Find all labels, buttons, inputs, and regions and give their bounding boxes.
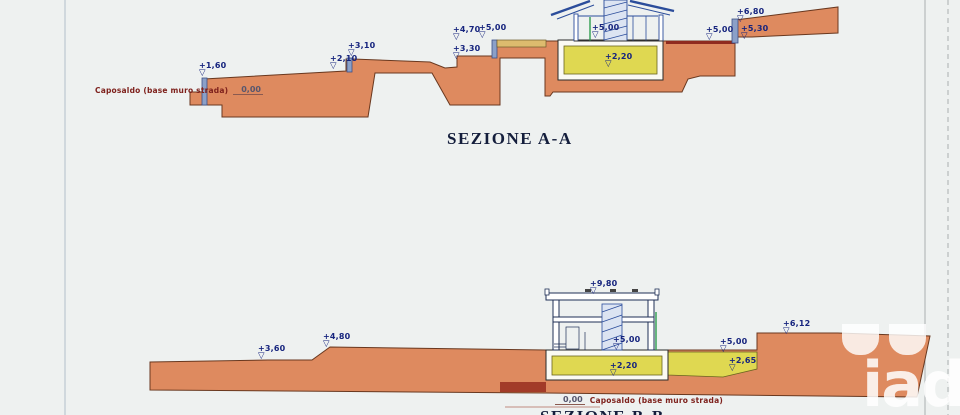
roof-slope-left (551, 1, 590, 15)
retaining-wall (732, 19, 738, 43)
caposaldo-a-label: Caposaldo (base muro strada) (95, 86, 228, 95)
section-a-terrain (190, 7, 838, 117)
basement-room-a (564, 46, 657, 74)
caposaldo-b: 0,00 Caposaldo (base muro strada) (555, 395, 723, 405)
retaining-wall (347, 58, 352, 72)
sections-svg (0, 0, 960, 415)
retaining-wall (492, 40, 497, 58)
footing-strip-b (500, 382, 546, 392)
watermark-iad: iad (836, 324, 960, 413)
parapet-left (545, 289, 549, 295)
wall-right (659, 15, 663, 41)
caposaldo-b-value: 0,00 (555, 395, 585, 405)
wall-left (553, 300, 559, 350)
parapet-right (655, 289, 659, 295)
roof-vent (632, 289, 638, 292)
roof-slab (546, 293, 658, 300)
section-a-title: SEZIONE A-A (447, 129, 573, 149)
section-b-terrain (150, 333, 930, 397)
roof-vent (610, 289, 616, 292)
caposaldo-a: Caposaldo (base muro strada) 0,00 (95, 85, 263, 95)
roof-vent (585, 289, 591, 292)
scanned-section-drawing: SEZIONE A-A SEZIONE B-B Caposaldo (base … (0, 0, 960, 415)
pavement-strip-a (666, 41, 735, 44)
section-b-title: SEZIONE B-B (540, 407, 665, 415)
roof-slope-right (630, 1, 674, 11)
wall-left (574, 14, 578, 41)
building-b (545, 289, 659, 350)
wall-right (648, 300, 654, 350)
courtyard-strip-a (497, 40, 546, 47)
caposaldo-b-label: Caposaldo (base muro strada) (590, 396, 723, 405)
basement-room-b (552, 356, 662, 375)
caposaldo-a-value: 0,00 (233, 85, 263, 95)
watermark-text: iad (862, 357, 960, 413)
terrain-wedge-right-a (735, 7, 838, 37)
interior-door (566, 327, 579, 349)
building-a (551, 0, 674, 41)
